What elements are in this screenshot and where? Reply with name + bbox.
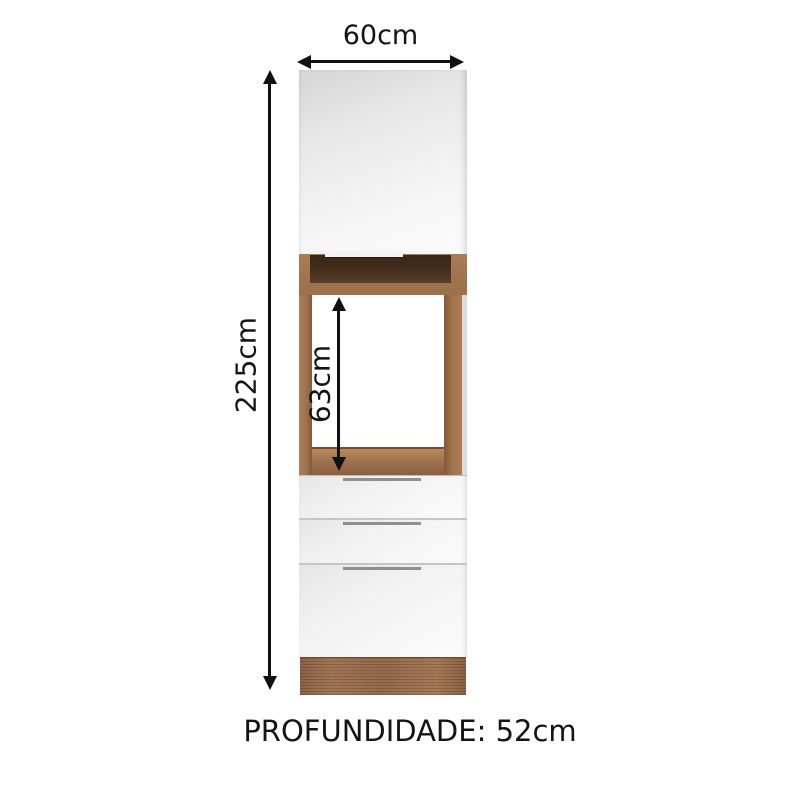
cavity-dimension-label: 63cm [304, 345, 337, 423]
niche-interior [310, 255, 451, 283]
width-dimension-label: 60cm [297, 20, 464, 52]
arrowhead-down-icon [332, 457, 346, 471]
height-arrow-line [268, 78, 271, 682]
drawer-3 [299, 563, 467, 657]
cavity-right-panel [444, 295, 462, 475]
upper-door-handle [325, 251, 403, 257]
drawer-2 [299, 518, 467, 563]
cavity-arrow-line [337, 305, 340, 463]
arrowhead-down-icon [263, 676, 277, 690]
cabinet-side-edge [462, 295, 467, 475]
wooden-plinth-base [300, 657, 466, 695]
open-shelf-niche [299, 254, 467, 295]
arrowhead-right-icon [450, 55, 464, 69]
depth-dimension-label: PROFUNDIDADE: 52cm [243, 714, 576, 748]
height-dimension-arrow [263, 70, 277, 690]
drawer-3-handle [343, 567, 421, 570]
drawer-stack [299, 475, 467, 657]
height-dimension-label: 225cm [230, 317, 263, 413]
width-dimension-arrow [297, 55, 464, 69]
drawer-1 [299, 475, 467, 518]
width-arrow-line [305, 60, 456, 63]
upper-door-panel [299, 70, 467, 254]
drawer-1-handle [343, 478, 421, 481]
drawer-2-handle [343, 522, 421, 525]
product-dimension-diagram: 60cm 225cm [0, 0, 800, 800]
